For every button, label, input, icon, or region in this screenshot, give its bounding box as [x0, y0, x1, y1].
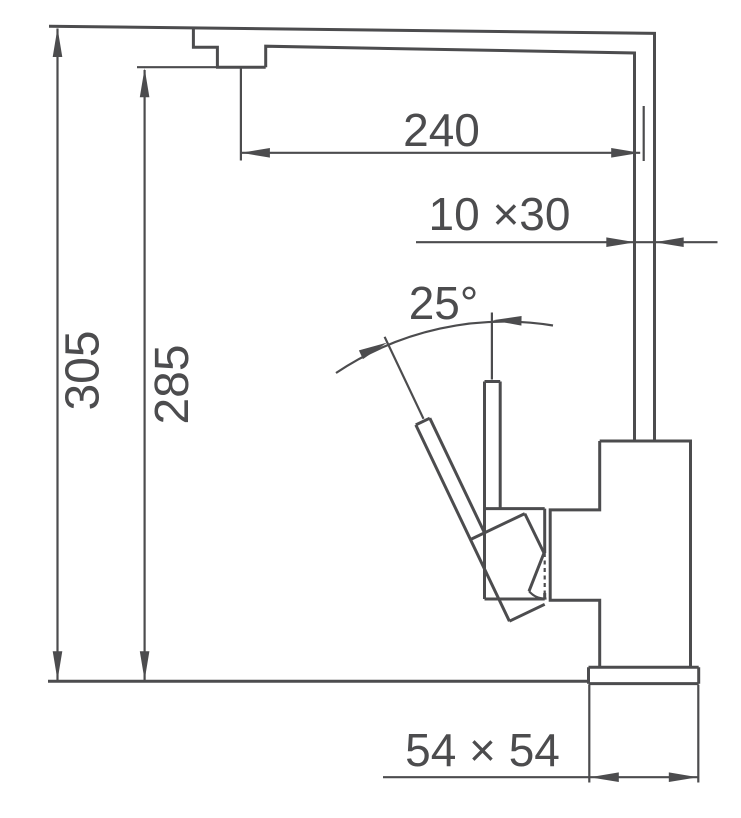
- svg-text:305: 305: [57, 330, 110, 410]
- svg-text:25°: 25°: [409, 277, 479, 329]
- svg-text:285: 285: [146, 344, 199, 424]
- svg-text:54 × 54: 54 × 54: [405, 724, 560, 776]
- svg-text:240: 240: [403, 104, 480, 156]
- svg-text:10 ×30: 10 ×30: [429, 188, 571, 240]
